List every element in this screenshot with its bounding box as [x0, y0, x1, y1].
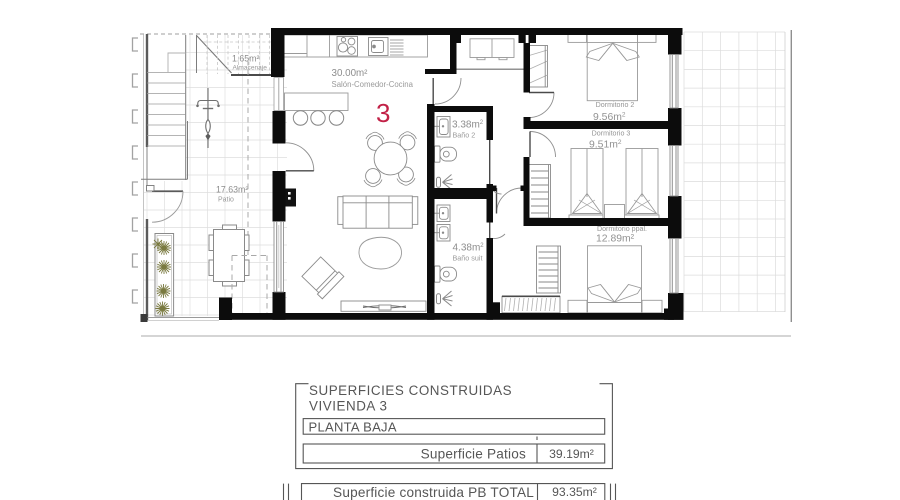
svg-text:Baño 2: Baño 2 [453, 131, 476, 140]
svg-text:12.89m²: 12.89m² [596, 234, 635, 245]
svg-text:Dormitorio 2: Dormitorio 2 [596, 101, 635, 109]
svg-text:3.38m2: 3.38m2 [452, 120, 484, 131]
svg-text:Baño suit: Baño suit [453, 254, 483, 263]
svg-text:Patio: Patio [218, 197, 234, 204]
svg-text:VIVIENDA 3: VIVIENDA 3 [309, 399, 387, 414]
svg-text:Dormitorio 3: Dormitorio 3 [592, 130, 631, 138]
svg-text:SUPERFICIES CONSTRUIDAS: SUPERFICIES CONSTRUIDAS [309, 383, 512, 398]
svg-text:30.00m²: 30.00m² [332, 68, 369, 79]
svg-text:93.35m²: 93.35m² [552, 485, 597, 499]
svg-text:3: 3 [376, 98, 390, 128]
svg-text:4.38m2: 4.38m2 [453, 243, 485, 254]
svg-text:Salón-Comedor-Cocina: Salón-Comedor-Cocina [332, 80, 414, 89]
svg-text:17.63m²: 17.63m² [216, 185, 248, 195]
svg-text:PLANTA BAJA: PLANTA BAJA [309, 419, 397, 434]
svg-text:Superficie construida PB TOTAL: Superficie construida PB TOTAL [333, 485, 534, 500]
svg-text:Superficie Patios: Superficie Patios [421, 446, 526, 461]
svg-text:Dormitorio ppal.: Dormitorio ppal. [597, 225, 647, 233]
svg-text:Almacenaje: Almacenaje [233, 65, 268, 72]
svg-text:39.19m²: 39.19m² [549, 447, 594, 461]
svg-text:1.65m²: 1.65m² [232, 54, 259, 64]
svg-text:9.51m2: 9.51m2 [589, 139, 622, 151]
